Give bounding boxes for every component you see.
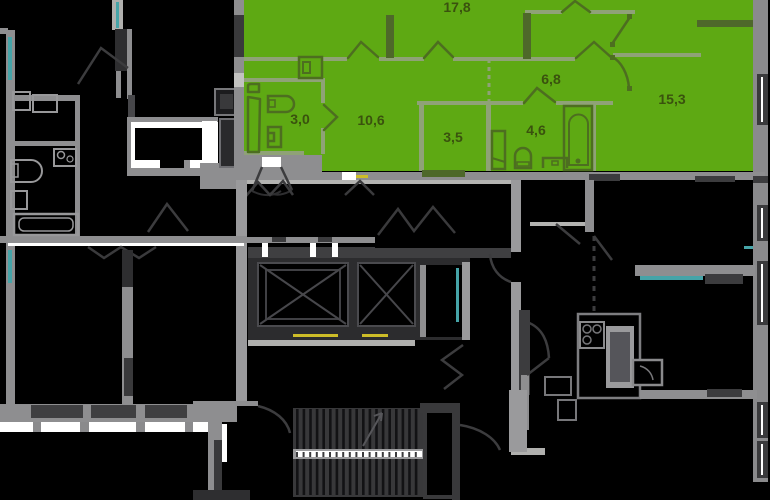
svg-text:3,5: 3,5 [443,129,463,145]
svg-text:3,0: 3,0 [290,111,310,127]
svg-text:15,3: 15,3 [658,91,685,107]
svg-text:10,6: 10,6 [357,112,384,128]
svg-text:6,8: 6,8 [541,71,561,87]
svg-text:17,8: 17,8 [443,0,470,15]
svg-text:4,6: 4,6 [526,122,546,138]
